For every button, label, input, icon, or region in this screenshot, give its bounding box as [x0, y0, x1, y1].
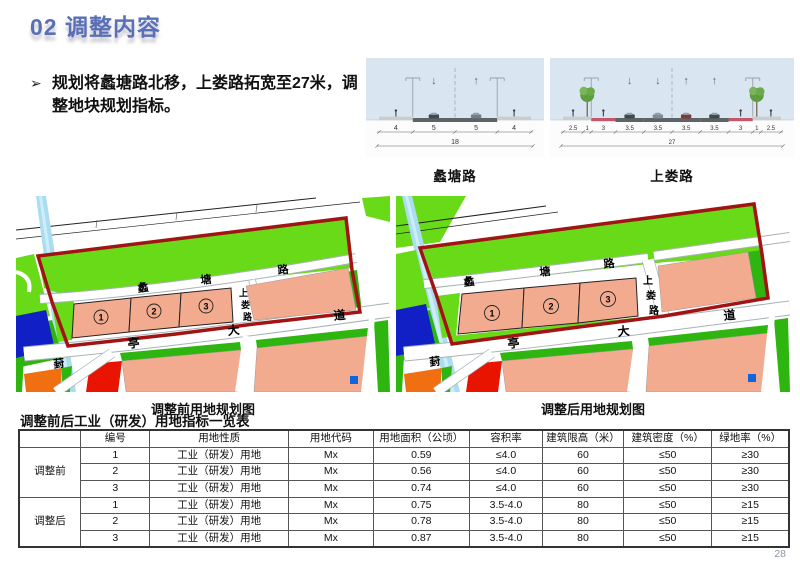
label-tingda-1: 亭 [127, 335, 141, 351]
label-litang-2: 塘 [539, 264, 552, 279]
map-after: 1 2 3 蠡 塘 路 上 娄 路 亭 大 道 葑 调整后用地规划图 [396, 196, 790, 418]
cross-section-litang-drawing: ↓↑455418 [366, 58, 544, 158]
railway-line [16, 198, 316, 230]
table-cell: 0.74 [373, 480, 469, 497]
table-cell: 工业（研发）用地 [150, 497, 289, 514]
map-after-caption: 调整后用地规划图 [396, 399, 790, 418]
table-cell: ≥30 [712, 464, 789, 481]
table-cell: ≤4.0 [469, 464, 542, 481]
table-cell: 1 [81, 447, 150, 464]
pedestrian [572, 109, 574, 111]
direction-arrow-icon: ↑ [712, 75, 718, 87]
table-cell: ≥15 [712, 514, 789, 531]
total-width-label: 27 [669, 140, 676, 146]
table-cell: ≥30 [712, 480, 789, 497]
direction-arrow-icon: ↓ [655, 75, 661, 87]
table-cell: 80 [543, 530, 624, 547]
cross-section-litang-caption: 蠡塘路 [366, 165, 544, 185]
plot-1-number: 1 [489, 309, 494, 319]
table-cell: 80 [543, 497, 624, 514]
cross-section-shanglou-caption: 上娄路 [550, 165, 794, 185]
direction-arrow-icon: ↓ [431, 75, 437, 87]
table-cell: 3.5-4.0 [469, 514, 542, 531]
dimension-label: 5 [432, 125, 436, 132]
cross-section-shanglou: ↓↓↑↑2.5133.53.53.53.5312.527 上娄路 [550, 58, 794, 185]
direction-arrow-icon: ↑ [683, 75, 689, 87]
dimension-label: 3.5 [710, 126, 719, 132]
pedestrian [513, 109, 515, 111]
table-cell: Mx [288, 447, 373, 464]
label-tingda-2: 大 [227, 322, 241, 338]
intro-text: 规划将蠡塘路北移，上娄路拓宽至27米，调整地块规划指标。 [52, 75, 358, 115]
map-after-drawing: 1 2 3 蠡 塘 路 上 娄 路 亭 大 道 葑 [396, 196, 790, 392]
table-cell: ≤50 [623, 447, 712, 464]
label-shanglou-2: 娄 [240, 299, 251, 310]
dimension-label: 4 [394, 125, 398, 132]
label-shanglou-2: 娄 [646, 289, 656, 302]
slide: 02 调整内容 ➢ 规划将蠡塘路北移，上娄路拓宽至27米，调整地块规划指标。 ↓… [0, 0, 800, 566]
column-header: 用地面积（公顷） [373, 430, 469, 447]
table-cell: 2 [81, 514, 150, 531]
table-cell: 60 [543, 464, 624, 481]
column-header: 建筑密度（%） [623, 430, 712, 447]
plot-3-number: 3 [203, 302, 208, 312]
table-cell: 3.5-4.0 [469, 530, 542, 547]
table-cell: 0.59 [373, 447, 469, 464]
pedestrian [395, 109, 397, 111]
label-shanglou-1: 上 [643, 274, 653, 287]
direction-arrow-icon: ↑ [473, 75, 479, 87]
table-cell: 60 [543, 480, 624, 497]
table-cell: 3.5-4.0 [469, 497, 542, 514]
column-header: 容积率 [469, 430, 542, 447]
table-row: 2工业（研发）用地Mx0.783.5-4.080≤50≥15 [19, 514, 789, 531]
cross-section-litang: ↓↑455418 蠡塘路 [366, 58, 544, 185]
dimension-label: 4 [512, 125, 516, 132]
column-header: 绿地率（%） [712, 430, 789, 447]
plot-1-number: 1 [98, 313, 103, 323]
table-cell: 3 [81, 530, 150, 547]
table-cell: 2 [81, 464, 150, 481]
table-cell: ≤50 [623, 530, 712, 547]
table-row: 3工业（研发）用地Mx0.74≤4.060≤50≥30 [19, 480, 789, 497]
table-cell: ≤50 [623, 464, 712, 481]
page-title: 02 调整内容 [30, 8, 161, 42]
plot-2-number: 2 [151, 307, 156, 317]
pedestrian [770, 109, 772, 111]
table-cell: ≤50 [623, 480, 712, 497]
intro-bullet: ➢ 规划将蠡塘路北移，上娄路拓宽至27米，调整地块规划指标。 [30, 72, 368, 118]
table-cell: ≥15 [712, 497, 789, 514]
dimension-label: 2.5 [767, 126, 776, 132]
table-cell: 3 [81, 480, 150, 497]
table-cell: ≥15 [712, 530, 789, 547]
table-cell: 工业（研发）用地 [150, 464, 289, 481]
table-cell: 工业（研发）用地 [150, 530, 289, 547]
pedestrian [739, 109, 741, 111]
label-litang-1: 蠡 [137, 280, 150, 295]
group-label-cell: 调整后 [19, 497, 81, 547]
dimension-label: 5 [474, 125, 478, 132]
label-tingda-3: 道 [333, 307, 347, 323]
map-before: 1 2 3 蠡 塘 路 上 娄 路 亭 大 道 葑 调整前用地规划图 [16, 196, 390, 418]
column-header: 用地性质 [150, 430, 289, 447]
table-cell: 0.75 [373, 497, 469, 514]
table-cell: Mx [288, 480, 373, 497]
table-cell: ≤4.0 [469, 447, 542, 464]
label-litang-2: 塘 [200, 272, 213, 287]
dimension-label: 3.5 [682, 126, 691, 132]
table-cell: 0.87 [373, 530, 469, 547]
table-cell: 60 [543, 447, 624, 464]
total-width-label: 18 [451, 139, 459, 146]
dimension-label: 3.5 [654, 126, 663, 132]
label-tingda-2: 大 [617, 323, 631, 339]
label-shanglou-1: 上 [239, 287, 248, 298]
table-cell: ≥30 [712, 447, 789, 464]
dimension-label: 2.5 [569, 126, 578, 132]
corner-cell [19, 430, 81, 447]
column-header: 编号 [81, 430, 150, 447]
table-cell: 1 [81, 497, 150, 514]
label-feng: 葑 [52, 356, 65, 371]
table-cell: Mx [288, 464, 373, 481]
label-tingda-1: 亭 [507, 335, 521, 351]
label-feng: 葑 [428, 354, 441, 369]
table-cell: 工业（研发）用地 [150, 480, 289, 497]
table-row: 3工业（研发）用地Mx0.873.5-4.080≤50≥15 [19, 530, 789, 547]
direction-arrow-icon: ↓ [627, 75, 633, 87]
table-cell: Mx [288, 530, 373, 547]
table-cell: 80 [543, 514, 624, 531]
table-cell: ≤50 [623, 497, 712, 514]
table-cell: 工业（研发）用地 [150, 447, 289, 464]
label-litang-1: 蠡 [463, 274, 476, 289]
table-row: 2工业（研发）用地Mx0.56≤4.060≤50≥30 [19, 464, 789, 481]
label-shanglou-3: 路 [243, 311, 253, 322]
group-label-cell: 调整前 [19, 447, 81, 497]
table-cell: 工业（研发）用地 [150, 514, 289, 531]
dimension-label: 3.5 [625, 126, 634, 132]
plot-3-number: 3 [605, 295, 610, 305]
table-cell: ≤50 [623, 514, 712, 531]
cross-section-shanglou-drawing: ↓↓↑↑2.5133.53.53.53.5312.527 [550, 58, 794, 158]
table-row: 调整前1工业（研发）用地Mx0.59≤4.060≤50≥30 [19, 447, 789, 464]
table-cell: 0.78 [373, 514, 469, 531]
table-cell: Mx [288, 514, 373, 531]
table-row: 调整后1工业（研发）用地Mx0.753.5-4.080≤50≥15 [19, 497, 789, 514]
table-cell: Mx [288, 497, 373, 514]
table-cell: ≤4.0 [469, 480, 542, 497]
label-tingda-3: 道 [723, 307, 737, 323]
label-shanglou-3: 路 [649, 304, 660, 317]
indicator-table: 编号用地性质用地代码用地面积（公顷）容积率建筑限高（米）建筑密度（%）绿地率（%… [18, 429, 790, 548]
page-number: 28 [774, 548, 786, 560]
table-title: 调整前后工业（研发）用地指标一览表 [20, 410, 250, 430]
column-header: 建筑限高（米） [543, 430, 624, 447]
bullet-arrow-icon: ➢ [30, 73, 42, 93]
map-before-drawing: 1 2 3 蠡 塘 路 上 娄 路 亭 大 道 葑 [16, 196, 390, 392]
pedestrian [602, 109, 604, 111]
plot-2-number: 2 [548, 302, 553, 312]
table-cell: 0.56 [373, 464, 469, 481]
column-header: 用地代码 [288, 430, 373, 447]
